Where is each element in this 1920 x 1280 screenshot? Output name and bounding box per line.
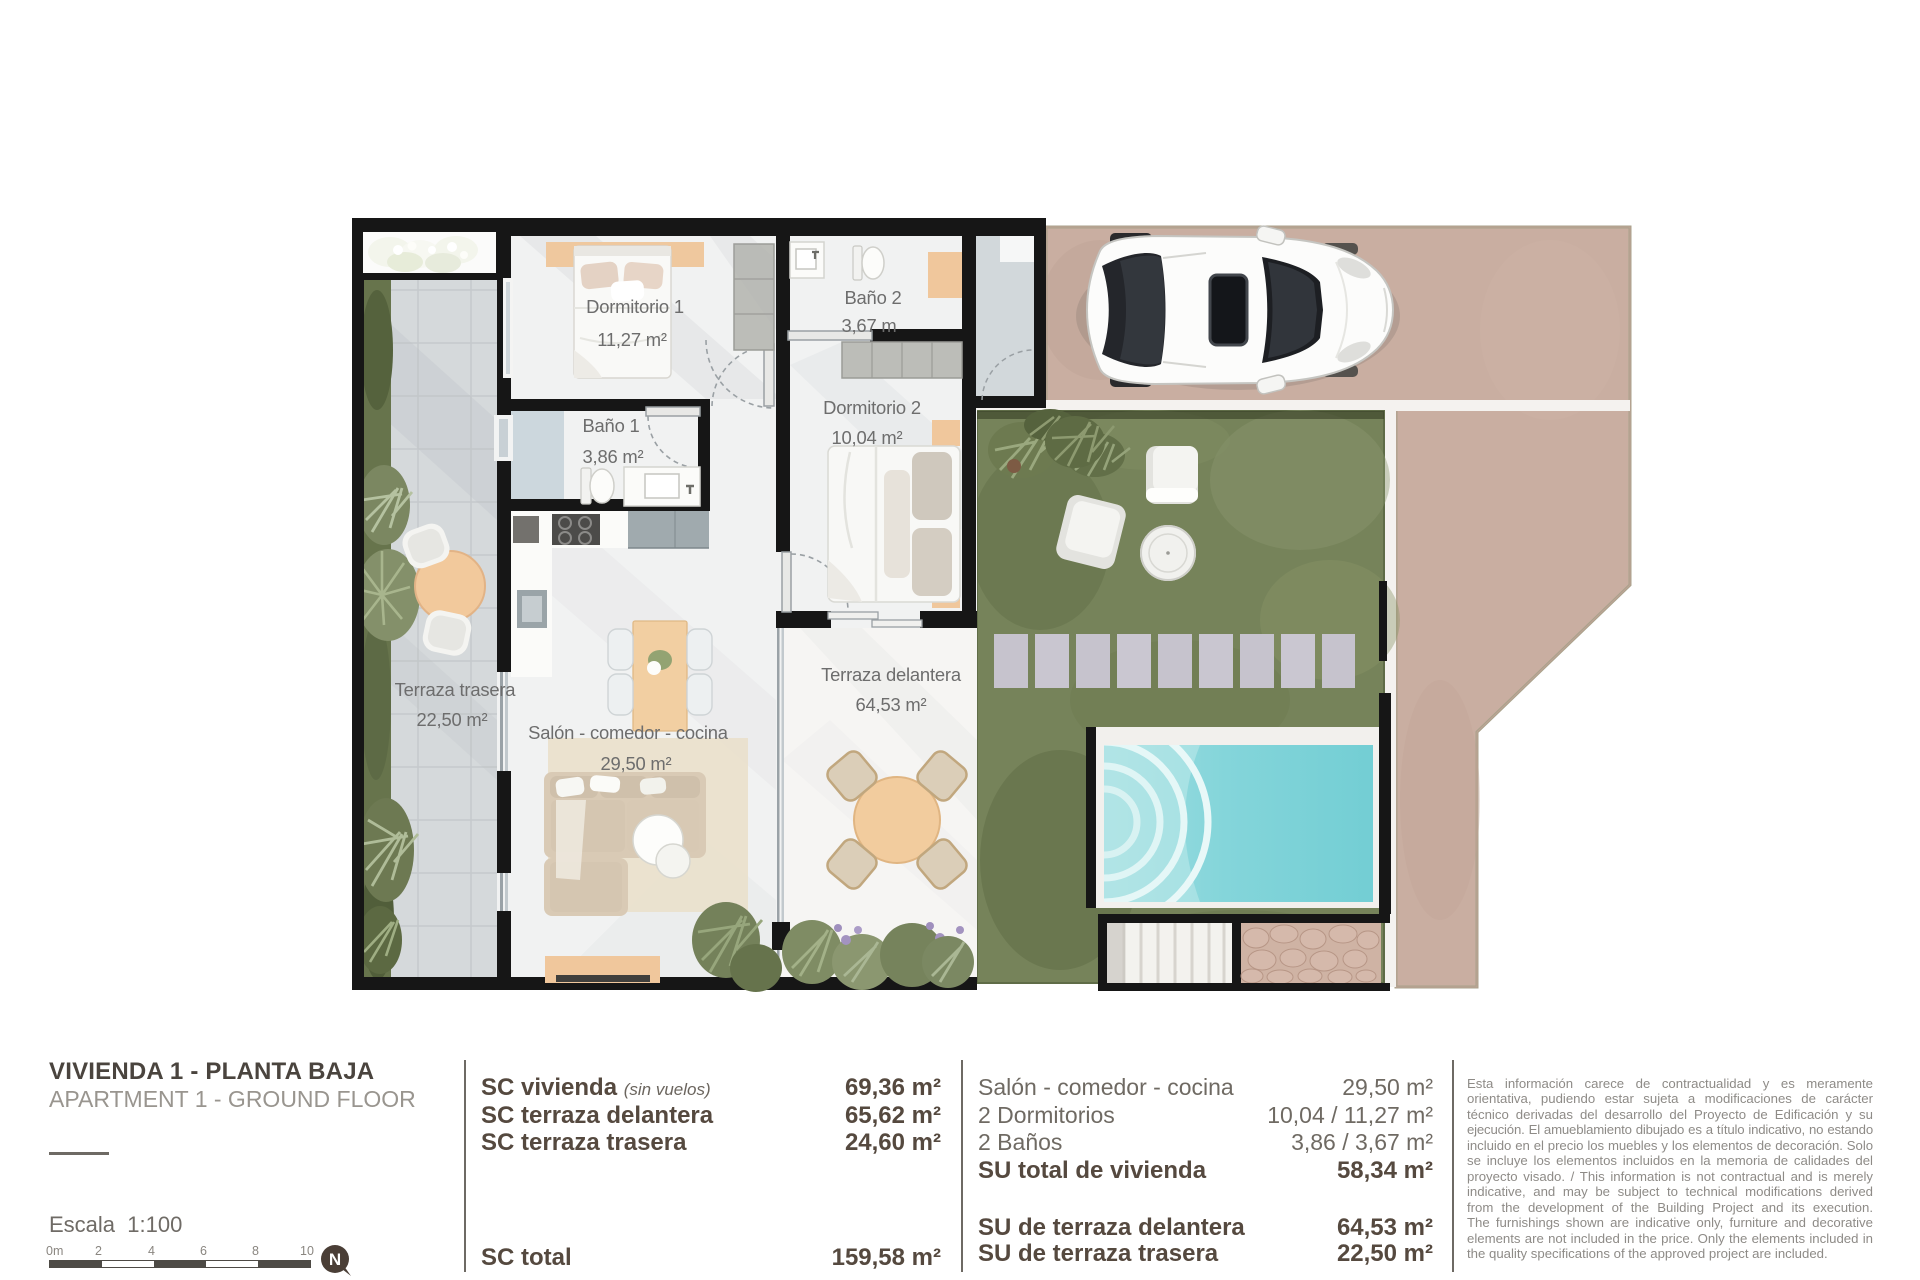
svg-text:Dormitorio 1: Dormitorio 1 (586, 296, 684, 317)
svg-text:Baño 2: Baño 2 (844, 287, 901, 308)
svg-text:3,86 m²: 3,86 m² (583, 446, 644, 467)
svg-text:Terraza trasera: Terraza trasera (395, 679, 517, 700)
svg-text:64,53 m²: 64,53 m² (856, 694, 927, 715)
svg-text:22,50 m²: 22,50 m² (417, 709, 488, 730)
svg-text:3,67 m: 3,67 m (841, 315, 896, 336)
svg-text:Salón - comedor - cocina: Salón - comedor - cocina (528, 722, 729, 743)
svg-text:N: N (329, 1250, 341, 1269)
svg-text:10,04 m²: 10,04 m² (832, 427, 903, 448)
svg-text:Dormitorio 2: Dormitorio 2 (823, 397, 921, 418)
svg-text:11,27 m²: 11,27 m² (597, 329, 667, 350)
svg-text:Terraza delantera: Terraza delantera (821, 664, 962, 685)
svg-text:29,50 m²: 29,50 m² (601, 753, 672, 774)
svg-text:Baño 1: Baño 1 (582, 415, 639, 436)
